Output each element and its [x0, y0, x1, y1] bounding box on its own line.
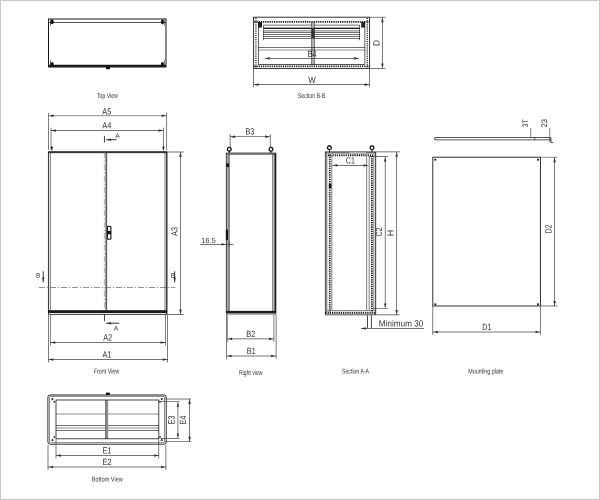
svg-text:B3: B3: [245, 127, 254, 137]
svg-text:E3: E3: [167, 416, 177, 425]
svg-text:A5: A5: [102, 107, 111, 117]
svg-text:B2: B2: [246, 329, 255, 339]
svg-text:D: D: [372, 40, 382, 46]
svg-text:Bottom View: Bottom View: [92, 475, 124, 483]
svg-text:16.5: 16.5: [201, 236, 216, 245]
svg-text:D1: D1: [482, 322, 491, 332]
svg-text:C2: C2: [374, 228, 384, 237]
svg-text:Section A-A: Section A-A: [342, 368, 369, 376]
svg-text:A3: A3: [169, 227, 179, 236]
svg-text:D2: D2: [544, 225, 554, 234]
svg-text:A2: A2: [103, 332, 112, 342]
svg-text:H: H: [386, 230, 396, 237]
svg-text:C1: C1: [346, 156, 355, 166]
svg-text:Top View: Top View: [97, 92, 119, 100]
svg-text:23: 23: [540, 118, 549, 127]
svg-text:W: W: [308, 75, 316, 85]
svg-text:A: A: [115, 133, 120, 140]
svg-text:E2: E2: [103, 457, 112, 467]
svg-text:B1: B1: [247, 346, 256, 356]
svg-text:3T: 3T: [521, 119, 530, 127]
svg-text:B4: B4: [308, 49, 317, 59]
svg-text:E1: E1: [103, 445, 112, 455]
svg-text:A: A: [114, 326, 119, 333]
svg-text:Minimum 30: Minimum 30: [379, 319, 424, 329]
svg-text:Front View: Front View: [94, 368, 120, 376]
svg-text:Section B-B: Section B-B: [298, 92, 326, 100]
svg-text:A4: A4: [102, 120, 111, 130]
svg-text:Mounting plate: Mounting plate: [468, 368, 503, 376]
svg-text:A1: A1: [103, 349, 112, 359]
svg-text:E4: E4: [178, 416, 188, 425]
svg-text:Right view: Right view: [239, 369, 263, 377]
svg-text:B: B: [36, 272, 40, 279]
